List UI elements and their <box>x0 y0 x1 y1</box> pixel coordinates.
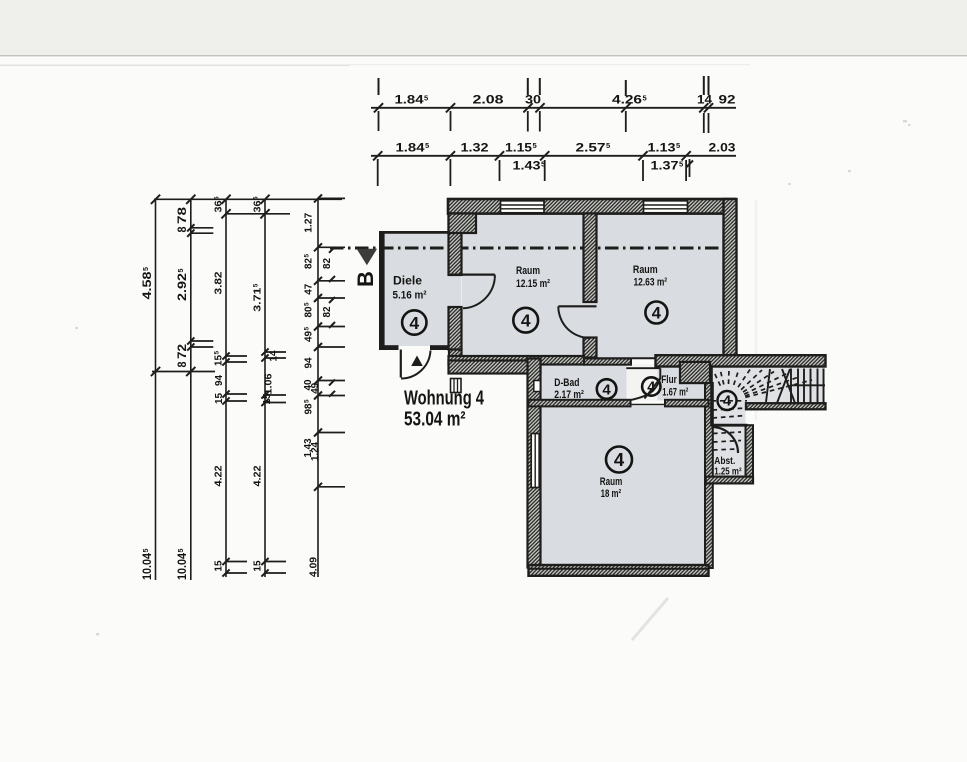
svg-text:49: 49 <box>304 331 315 342</box>
svg-text:4.22: 4.22 <box>213 465 224 486</box>
svg-text:5: 5 <box>304 399 311 403</box>
svg-text:1.43: 1.43 <box>513 159 541 173</box>
svg-text:94: 94 <box>304 357 315 368</box>
svg-text:4.58: 4.58 <box>142 271 154 300</box>
svg-text:49: 49 <box>310 382 321 393</box>
svg-text:4: 4 <box>652 304 662 322</box>
svg-text:15: 15 <box>214 393 225 404</box>
svg-text:4: 4 <box>602 381 611 398</box>
svg-text:82: 82 <box>322 306 333 317</box>
svg-text:4: 4 <box>409 313 419 333</box>
svg-text:5: 5 <box>176 549 185 553</box>
svg-text:3.71: 3.71 <box>252 287 263 311</box>
svg-text:D-Bad: D-Bad <box>554 377 579 389</box>
svg-text:47: 47 <box>304 283 315 294</box>
svg-text:5: 5 <box>252 196 259 200</box>
svg-text:1.27: 1.27 <box>304 212 315 232</box>
svg-text:15: 15 <box>213 560 224 571</box>
svg-text:Raum: Raum <box>516 265 540 277</box>
svg-text:14: 14 <box>269 350 280 361</box>
svg-text:Flur: Flur <box>661 374 677 386</box>
svg-text:4.22: 4.22 <box>252 465 263 486</box>
svg-text:Diele: Diele <box>393 276 422 288</box>
svg-text:92: 92 <box>719 93 736 107</box>
svg-text:8: 8 <box>177 226 189 233</box>
svg-text:5: 5 <box>252 283 259 287</box>
svg-text:4.26: 4.26 <box>612 93 642 107</box>
svg-text:2.57: 2.57 <box>576 140 606 154</box>
svg-text:14: 14 <box>697 93 712 107</box>
svg-text:1.15: 1.15 <box>505 140 532 154</box>
svg-text:1.84: 1.84 <box>395 93 424 107</box>
svg-text:1.24: 1.24 <box>310 442 321 461</box>
svg-text:72: 72 <box>177 344 189 359</box>
svg-text:10.04: 10.04 <box>142 552 154 580</box>
svg-text:3.82: 3.82 <box>213 271 224 294</box>
svg-text:4.09: 4.09 <box>309 557 320 577</box>
svg-text:5: 5 <box>141 267 150 271</box>
svg-text:82: 82 <box>304 258 315 269</box>
svg-text:12.15 m²: 12.15 m² <box>516 278 550 290</box>
svg-text:80: 80 <box>304 306 315 317</box>
svg-text:12.63 m²: 12.63 m² <box>634 277 668 289</box>
svg-text:5: 5 <box>213 351 220 355</box>
svg-text:1.37: 1.37 <box>651 159 679 173</box>
svg-text:1.06: 1.06 <box>264 373 275 394</box>
svg-text:98: 98 <box>304 403 315 414</box>
svg-text:Raum: Raum <box>633 264 658 276</box>
svg-text:1.25 m²: 1.25 m² <box>714 466 742 478</box>
svg-text:78: 78 <box>177 206 189 224</box>
svg-text:5.16 m²: 5.16 m² <box>393 290 427 302</box>
svg-text:B: B <box>353 271 378 287</box>
svg-text:5: 5 <box>213 196 220 200</box>
svg-text:2.08: 2.08 <box>473 93 504 107</box>
svg-text:5: 5 <box>304 254 311 258</box>
svg-text:18 m²: 18 m² <box>601 488 622 500</box>
svg-text:1.13: 1.13 <box>648 140 676 154</box>
svg-text:5: 5 <box>304 327 311 331</box>
svg-text:2.17 m²: 2.17 m² <box>554 389 584 401</box>
svg-text:1.84: 1.84 <box>396 140 425 154</box>
svg-text:30: 30 <box>525 93 541 107</box>
svg-text:5: 5 <box>304 302 311 306</box>
svg-text:1.32: 1.32 <box>461 140 489 154</box>
svg-text:4: 4 <box>614 449 625 470</box>
svg-text:2.03: 2.03 <box>709 140 736 154</box>
svg-text:Wohnung 4: Wohnung 4 <box>404 388 485 410</box>
svg-text:1.67 m²: 1.67 m² <box>662 387 688 399</box>
svg-text:4: 4 <box>723 394 731 410</box>
svg-text:15: 15 <box>252 560 263 571</box>
svg-text:2.92: 2.92 <box>177 273 189 301</box>
svg-text:4: 4 <box>521 311 531 331</box>
svg-text:5: 5 <box>141 549 150 553</box>
svg-text:36: 36 <box>252 200 263 212</box>
svg-text:94: 94 <box>214 375 225 386</box>
svg-text:5: 5 <box>176 269 185 273</box>
svg-text:53.04 m²: 53.04 m² <box>404 409 466 431</box>
svg-text:10.04: 10.04 <box>177 552 189 580</box>
svg-text:36: 36 <box>213 200 224 212</box>
svg-text:8: 8 <box>177 361 189 368</box>
svg-text:Raum: Raum <box>600 476 623 488</box>
svg-text:82: 82 <box>322 258 333 269</box>
svg-text:15: 15 <box>213 355 224 366</box>
svg-text:15: 15 <box>262 393 273 404</box>
